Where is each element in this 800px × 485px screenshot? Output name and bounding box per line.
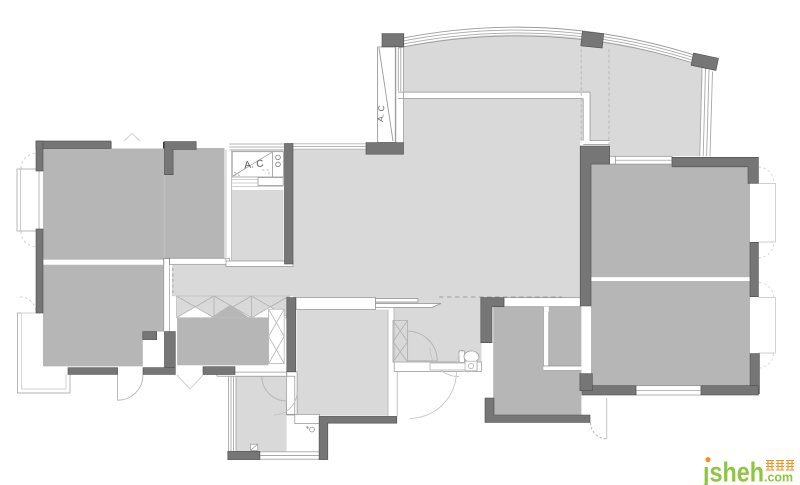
svg-text:.com: .com (764, 470, 793, 485)
svg-text:ȷsheh: ȷsheh (702, 457, 764, 485)
svg-text:A. C: A. C (375, 105, 386, 122)
svg-text:A. C: A. C (244, 158, 264, 171)
